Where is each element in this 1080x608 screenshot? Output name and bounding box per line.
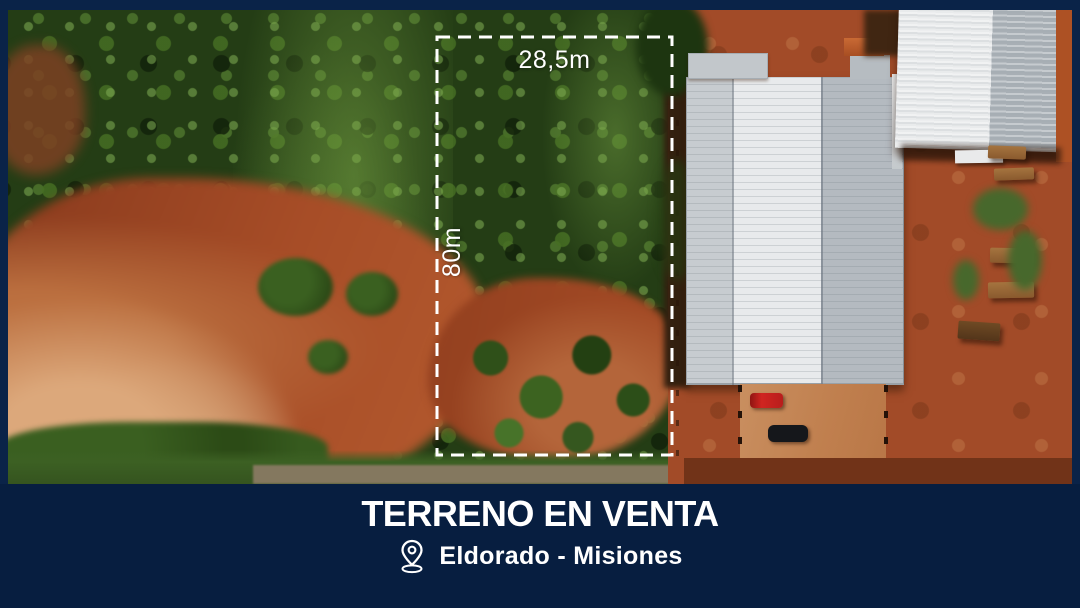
- roof-seam: [732, 77, 734, 385]
- warehouse-roof: [686, 77, 904, 385]
- secondary-warehouse-roof: [895, 10, 1064, 152]
- listing-title: TERRENO EN VENTA: [0, 484, 1080, 532]
- plot-depth-label: 80m: [436, 210, 468, 294]
- tree-cluster: [308, 340, 348, 374]
- black-car: [768, 425, 808, 442]
- warehouse-annex: [688, 53, 768, 79]
- aerial-photo: 28,5m 80m: [8, 10, 1072, 484]
- fence-posts: [738, 385, 742, 463]
- lumber-stack: [988, 145, 1026, 159]
- listing-card: 28,5m 80m TERRENO EN VENTA Eldorado - Mi…: [0, 0, 1080, 608]
- warehouse-annex: [850, 55, 890, 79]
- title-banner: TERRENO EN VENTA Eldorado - Misiones: [0, 484, 1080, 608]
- plot-width-label: 28,5m: [437, 46, 672, 75]
- location-label: Eldorado - Misiones: [439, 542, 682, 571]
- lumber-stack: [957, 321, 1000, 342]
- map-pin-icon: [397, 538, 427, 574]
- dirt-road-horizontal: [253, 465, 690, 484]
- boundary-rect: [437, 37, 672, 455]
- red-car: [750, 393, 783, 408]
- dirt-road-bottom: [684, 458, 1072, 484]
- tree-cluster: [258, 258, 333, 316]
- location-row: Eldorado - Misiones: [0, 538, 1080, 574]
- weed-patch: [1008, 230, 1042, 290]
- fence-posts: [884, 385, 888, 463]
- property-boundary-outline: [435, 35, 674, 457]
- roof-seam: [821, 77, 823, 385]
- weed-patch: [953, 260, 979, 300]
- lumber-stack: [994, 167, 1034, 180]
- weed-patch: [973, 188, 1028, 230]
- tree-cluster: [346, 272, 398, 316]
- orange-dirt-strip: [1056, 10, 1072, 162]
